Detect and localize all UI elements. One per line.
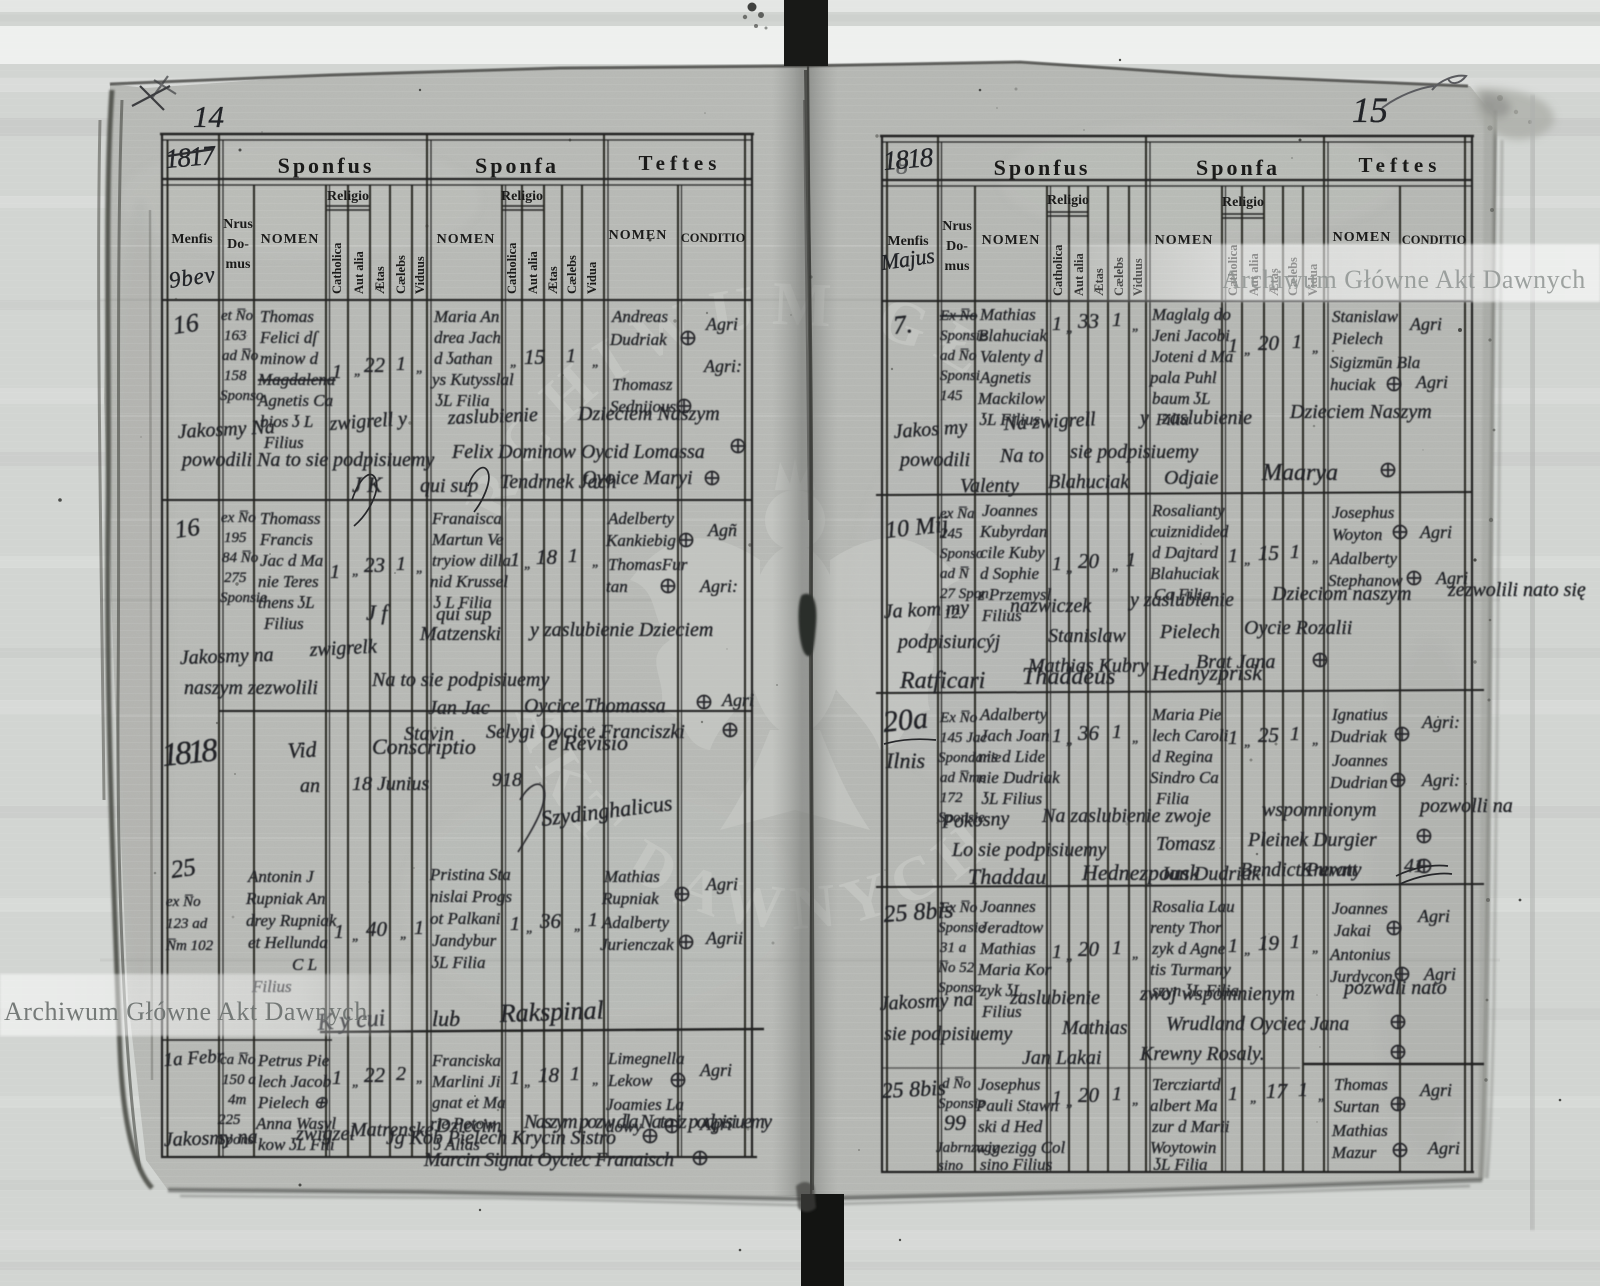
svg-text:podpisiuncýj: podpisiuncýj: [896, 631, 1001, 653]
svg-text:18: 18: [538, 1063, 560, 1087]
svg-text:sie podpisiuemy: sie podpisiuemy: [884, 1023, 1012, 1045]
svg-text:918: 918: [492, 769, 522, 791]
svg-text:ot Palkani: ot Palkani: [430, 909, 501, 928]
svg-text:Agri: Agri: [699, 1060, 732, 1080]
svg-text:„: „: [1250, 1091, 1258, 1106]
svg-text:Krewny Rosaly.: Krewny Rosaly.: [1139, 1043, 1265, 1065]
svg-text:Dudriak: Dudriak: [1329, 727, 1387, 746]
svg-text:20: 20: [1078, 549, 1100, 573]
svg-text:zwoj wspomnienym: zwoj wspomnienym: [1139, 983, 1295, 1005]
svg-text:33: 33: [1077, 309, 1099, 333]
svg-text:„: „: [416, 561, 424, 576]
svg-text:baum ʖL: baum ʖL: [1152, 389, 1210, 408]
svg-text:Adelberty: Adelberty: [607, 509, 675, 528]
svg-text:Thomass: Thomass: [260, 509, 321, 528]
svg-text:Bendict Puratt: Bendict Puratt: [1240, 859, 1358, 881]
svg-text:Wrudland Oyciec Jana: Wrudland Oyciec Jana: [1166, 1013, 1349, 1035]
svg-text:Marlini Ji: Marlini Ji: [431, 1072, 501, 1091]
svg-text:Lo sie podpisiuemy: Lo sie podpisiuemy: [951, 839, 1107, 861]
svg-text:Mathias: Mathias: [1061, 1017, 1128, 1039]
svg-text:Joannes: Joannes: [1332, 751, 1388, 770]
svg-text:zaslubienie: zaslubienie: [446, 404, 538, 429]
svg-text:y zaslubienie Dzieciem: y zaslubienie Dzieciem: [528, 619, 713, 641]
svg-text:NOMEN: NOMEN: [609, 228, 668, 243]
svg-text:Dzieciem Naszym: Dzieciem Naszym: [577, 403, 720, 425]
svg-text:Blahuciak: Blahuciak: [1150, 564, 1219, 583]
svg-text:Mathias: Mathias: [1331, 1121, 1388, 1140]
svg-text:„: „: [592, 1073, 600, 1088]
svg-text:1: 1: [1228, 727, 1238, 749]
svg-text:Agri:: Agri:: [1421, 770, 1460, 790]
svg-text:Archiwum Główne Akt Dawnych: Archiwum Główne Akt Dawnych: [1222, 265, 1586, 294]
svg-text:Felix Dominow Oycid Lomassa: Felix Dominow Oycid Lomassa: [451, 441, 705, 463]
svg-text:zaslubienie: zaslubienie: [1009, 987, 1100, 1009]
svg-text:cuiznidided: cuiznidided: [1150, 522, 1229, 541]
svg-text:1: 1: [414, 917, 424, 939]
svg-text:1: 1: [1228, 545, 1238, 567]
svg-text:1: 1: [1228, 935, 1238, 957]
svg-text:zwigzel: zwigzel: [295, 1123, 355, 1145]
svg-text:Conscriptio: Conscriptio: [372, 734, 476, 759]
svg-text:ex N̅o: ex N̅o: [221, 510, 256, 526]
svg-text:ʖL Filia: ʖL Filia: [431, 953, 485, 972]
svg-text:qui sup: qui sup: [420, 475, 478, 497]
svg-text:huciak: huciak: [1330, 375, 1376, 394]
svg-text:zaslubienie: zaslubienie: [1161, 407, 1252, 429]
svg-text:„: „: [1066, 733, 1074, 748]
svg-text:ex N̅a: ex N̅a: [940, 506, 975, 522]
svg-text:1: 1: [1126, 549, 1136, 571]
svg-text:18: 18: [536, 545, 558, 569]
svg-text:Pleinek Durgier: Pleinek Durgier: [1247, 829, 1377, 851]
svg-text:Nrus: Nrus: [942, 219, 972, 234]
svg-text:pala Puhl: pala Puhl: [1149, 368, 1217, 387]
svg-text:„: „: [1244, 553, 1252, 568]
svg-text:Agri:: Agri:: [1421, 712, 1460, 732]
svg-text:Adalberty: Adalberty: [601, 913, 669, 932]
svg-text:Ex N̅o: Ex N̅o: [939, 308, 978, 324]
svg-text:Sponfus: Sponfus: [994, 155, 1091, 180]
svg-text:40: 40: [366, 917, 388, 941]
svg-text:„: „: [1066, 321, 1074, 336]
svg-text:Teftes: Teftes: [639, 151, 722, 175]
svg-text:thens ʖL: thens ʖL: [258, 593, 315, 612]
svg-text:„: „: [416, 361, 424, 376]
svg-text:Joteni d Ma: Joteni d Ma: [1152, 347, 1233, 366]
svg-text:d Regina: d Regina: [1152, 747, 1213, 766]
svg-text:Religio: Religio: [1222, 195, 1264, 210]
svg-text:1: 1: [1112, 1083, 1122, 1105]
svg-text:„: „: [1312, 733, 1320, 748]
svg-text:Maria An: Maria An: [433, 307, 499, 326]
svg-text:Ex N̅o: Ex N̅o: [939, 710, 978, 726]
svg-text:ThomasFur: ThomasFur: [608, 555, 688, 574]
svg-text:Pielech: Pielech: [1331, 329, 1383, 348]
svg-text:nis d Lide: nis d Lide: [978, 747, 1046, 766]
svg-text:cile Kuby: cile Kuby: [980, 543, 1045, 562]
svg-text:Viduus: Viduus: [413, 256, 427, 294]
svg-text:Agnetis Ca: Agnetis Ca: [257, 391, 333, 410]
svg-text:ad N̅o: ad N̅o: [940, 348, 977, 364]
svg-text:„: „: [1132, 947, 1140, 962]
svg-text:Andreas: Andreas: [611, 307, 668, 326]
svg-text:1: 1: [396, 553, 406, 575]
svg-text:23: 23: [364, 553, 385, 577]
svg-text:Dzieciem Naszym: Dzieciem Naszym: [1289, 401, 1432, 423]
svg-text:Franciska: Franciska: [431, 1051, 501, 1070]
svg-text:Agri:: Agri:: [699, 576, 738, 596]
svg-text:J f: J f: [366, 600, 390, 625]
svg-text:nie Teres: nie Teres: [258, 572, 319, 591]
svg-text:Pristina Sta: Pristina Sta: [429, 865, 511, 884]
svg-text:Na to sie podpisiuemy: Na to sie podpisiuemy: [371, 669, 549, 691]
svg-text:1: 1: [332, 1067, 342, 1089]
svg-text:Blahuciak: Blahuciak: [1048, 471, 1130, 493]
svg-text:„: „: [592, 555, 600, 570]
svg-text:NOMEN: NOMEN: [437, 232, 496, 247]
svg-text:1: 1: [566, 345, 576, 367]
svg-text:Sponfa: Sponfa: [475, 153, 559, 178]
svg-text:Jeradtow: Jeradtow: [980, 918, 1044, 937]
svg-text:y zaslubienie: y zaslubienie: [1128, 589, 1234, 611]
svg-text:Magdalena: Magdalena: [257, 370, 335, 389]
svg-text:Sponfa: Sponfa: [1196, 155, 1280, 180]
svg-text:„: „: [1244, 943, 1252, 958]
svg-text:„: „: [526, 921, 534, 936]
svg-text:Na to: Na to: [999, 445, 1044, 467]
svg-text:1: 1: [1052, 553, 1062, 575]
svg-text:Petrus Pie: Petrus Pie: [257, 1051, 330, 1070]
svg-text:Maglalg do: Maglalg do: [1151, 305, 1231, 324]
svg-text:1: 1: [1052, 313, 1062, 335]
svg-text:1: 1: [1290, 931, 1300, 953]
svg-text:Pokosny: Pokosny: [940, 807, 1010, 833]
svg-text:Mathias: Mathias: [979, 305, 1036, 324]
svg-text:Oycie Rozalii: Oycie Rozalii: [1244, 617, 1352, 639]
svg-text:25: 25: [169, 854, 198, 884]
svg-text:Thomas: Thomas: [260, 307, 314, 326]
svg-text:ʖL Filius: ʖL Filius: [981, 789, 1042, 808]
svg-text:sino Filius: sino Filius: [980, 1155, 1053, 1174]
svg-text:Joannes: Joannes: [980, 897, 1036, 916]
svg-text:zyk d Agne: zyk d Agne: [1151, 939, 1226, 958]
svg-text:1817: 1817: [164, 140, 218, 174]
svg-text:N̅m 102: N̅m 102: [165, 938, 214, 954]
svg-text:Adalberty: Adalberty: [1329, 549, 1397, 568]
svg-text:14: 14: [193, 99, 224, 134]
svg-text:Sponsi: Sponsi: [940, 368, 980, 384]
svg-text:150 a: 150 a: [222, 1072, 256, 1088]
svg-text:15: 15: [1352, 90, 1388, 130]
svg-text:Surtan: Surtan: [1334, 1097, 1379, 1116]
svg-text:Adalberty: Adalberty: [979, 705, 1047, 724]
svg-text:Jurienczak: Jurienczak: [600, 935, 674, 954]
svg-text:zwigrelk: zwigrelk: [308, 635, 378, 661]
svg-text:„: „: [524, 557, 532, 572]
svg-text:Do-: Do-: [946, 239, 968, 254]
svg-text:17: 17: [1266, 1079, 1289, 1103]
svg-text:Joannes: Joannes: [1332, 899, 1388, 918]
svg-text:Franaisca: Franaisca: [431, 509, 502, 528]
svg-text:Antonius: Antonius: [1329, 945, 1391, 964]
svg-text:Agri: Agri: [1409, 314, 1442, 334]
svg-text:ad N̅o: ad N̅o: [222, 348, 259, 364]
svg-text:22: 22: [364, 353, 386, 377]
svg-text:20: 20: [1258, 331, 1280, 355]
svg-text:„: „: [1066, 561, 1074, 576]
svg-text:drey Rupniak: drey Rupniak: [246, 911, 337, 930]
svg-text:Mackilow: Mackilow: [977, 389, 1046, 408]
svg-text:N̅o 52: N̅o 52: [937, 960, 975, 976]
svg-text:„: „: [400, 927, 408, 942]
svg-text:1: 1: [330, 561, 340, 583]
svg-text:„: „: [510, 355, 518, 370]
svg-text:Valenty: Valenty: [960, 475, 1019, 497]
svg-text:albert Ma: albert Ma: [1150, 1096, 1218, 1115]
svg-text:Cælebs: Cælebs: [565, 255, 579, 294]
svg-text:mus: mus: [226, 257, 251, 272]
svg-text:„: „: [354, 364, 362, 379]
svg-text:Thomasz: Thomasz: [612, 375, 673, 394]
svg-text:wspomnionym: wspomnionym: [1262, 799, 1376, 821]
svg-text:sino: sino: [938, 1158, 964, 1174]
svg-text:lech Jacob: lech Jacob: [258, 1072, 331, 1091]
svg-text:Agri: Agri: [705, 874, 738, 894]
svg-text:nie Dudriak: nie Dudriak: [978, 768, 1060, 787]
svg-text:Agñ: Agñ: [707, 520, 737, 540]
svg-text:zezwolili nato się: zezwolili nato się: [1447, 579, 1586, 601]
svg-text:NOMEN: NOMEN: [1333, 230, 1392, 245]
svg-text:Agri: Agri: [1415, 372, 1448, 392]
svg-text:Woyton: Woyton: [1332, 525, 1382, 544]
svg-text:Jan Jac: Jan Jac: [428, 697, 490, 719]
svg-text:Hednezpousk: Hednezpousk: [1081, 860, 1201, 885]
svg-text:„: „: [1132, 1093, 1140, 1108]
svg-text:Catholica: Catholica: [505, 242, 519, 294]
svg-text:„: „: [1244, 343, 1252, 358]
svg-text:lech Caroli: lech Caroli: [1152, 726, 1229, 745]
svg-text:1: 1: [510, 913, 520, 935]
svg-text:gnat et Ma: gnat et Ma: [432, 1093, 506, 1112]
svg-text:1: 1: [334, 921, 344, 943]
svg-text:Jg Kob Pielech Krycin Sistro: Jg Kob Pielech Krycin Sistro: [386, 1127, 616, 1149]
svg-text:1: 1: [1112, 937, 1122, 959]
svg-text:1: 1: [1228, 1083, 1238, 1105]
svg-text:1: 1: [332, 361, 342, 383]
svg-text:zur d Marii: zur d Marii: [1151, 1117, 1230, 1136]
svg-text:22: 22: [364, 1063, 386, 1087]
svg-text:1: 1: [510, 1067, 520, 1089]
svg-text:mus: mus: [945, 259, 970, 274]
svg-text:ex N̅o: ex N̅o: [166, 894, 201, 910]
svg-text:Josephus: Josephus: [978, 1075, 1041, 1094]
svg-text:Jan Lakai: Jan Lakai: [1022, 1047, 1101, 1069]
svg-text:99: 99: [944, 1110, 966, 1135]
svg-text:20: 20: [1078, 1083, 1100, 1107]
svg-text:Lekow: Lekow: [607, 1071, 653, 1090]
svg-text:1: 1: [1290, 723, 1300, 745]
svg-text:d ʖathan: d ʖathan: [434, 349, 492, 368]
svg-text:d Sophie: d Sophie: [980, 564, 1039, 583]
svg-text:e Revisio: e Revisio: [548, 730, 628, 755]
svg-text:Catholica: Catholica: [330, 242, 344, 294]
svg-text:C L: C L: [292, 955, 317, 974]
svg-text:Mathias: Mathias: [603, 867, 660, 886]
svg-text:Vidua: Vidua: [585, 261, 599, 294]
svg-text:„: „: [352, 929, 360, 944]
svg-text:Kankiebig: Kankiebig: [605, 531, 676, 550]
svg-text:ski d Hed: ski d Hed: [978, 1117, 1043, 1136]
svg-text:1: 1: [568, 545, 578, 567]
svg-text:1: 1: [1112, 309, 1122, 331]
svg-text:ʖL Filia: ʖL Filia: [1153, 1155, 1207, 1174]
svg-text:Pielech: Pielech: [1159, 621, 1220, 643]
svg-text:Oycice Thomassa: Oycice Thomassa: [524, 695, 666, 717]
svg-text:„: „: [1132, 319, 1140, 334]
svg-text:Thaddeus: Thaddeus: [1022, 664, 1115, 690]
svg-text:2: 2: [396, 1063, 406, 1085]
svg-text:Stanislaw: Stanislaw: [1332, 307, 1399, 326]
svg-text:Aut alia: Aut alia: [352, 251, 366, 294]
svg-text:Oyoice Maryi: Oyoice Maryi: [582, 467, 693, 489]
svg-text:172: 172: [940, 790, 963, 806]
svg-text:renty Thor: renty Thor: [1150, 918, 1222, 937]
svg-text:Rakspinal: Rakspinal: [498, 995, 604, 1028]
svg-text:NOMEN: NOMEN: [261, 232, 320, 247]
svg-text:„: „: [1312, 341, 1320, 356]
svg-text:Archiwum Główne Akt Dawnych: Archiwum Główne Akt Dawnych: [4, 997, 368, 1026]
svg-text:powodili Na to sie podpisiuemy: powodili Na to sie podpisiuemy: [180, 449, 434, 471]
svg-text:„: „: [524, 1075, 532, 1090]
svg-text:1: 1: [396, 353, 406, 375]
svg-text:Rosalianty: Rosalianty: [1151, 501, 1225, 520]
svg-text:1818: 1818: [160, 732, 220, 774]
svg-text:Ætas: Ætas: [546, 266, 560, 294]
svg-text:Stanislaw: Stanislaw: [1048, 625, 1126, 647]
svg-text:Thaddau: Thaddau: [968, 864, 1046, 889]
svg-text:Pielech ⊕: Pielech ⊕: [257, 1093, 328, 1112]
svg-text:Agnetis: Agnetis: [979, 368, 1031, 387]
svg-text:20a: 20a: [881, 701, 929, 739]
svg-text:Martun Ve: Martun Ve: [431, 530, 504, 549]
svg-text:Rupniak An: Rupniak An: [245, 889, 325, 908]
svg-text:„: „: [592, 355, 600, 370]
svg-text:Ætas: Ætas: [373, 266, 387, 294]
svg-text:et N̅o: et N̅o: [221, 308, 254, 324]
svg-text:et Hellunda: et Hellunda: [248, 933, 328, 952]
svg-text:„: „: [1312, 941, 1320, 956]
svg-text:25 8bis: 25 8bis: [881, 1075, 946, 1103]
svg-text:an: an: [300, 775, 320, 797]
svg-text:powodili: powodili: [898, 449, 970, 471]
svg-text:tan: tan: [606, 577, 628, 596]
svg-text:Sponfus: Sponfus: [278, 153, 375, 178]
svg-text:Jakosmy na: Jakosmy na: [179, 644, 274, 669]
svg-text:minow d: minow d: [260, 349, 319, 368]
svg-text:Aut alia: Aut alia: [526, 251, 540, 294]
svg-text:Tercziartd: Tercziartd: [1152, 1075, 1221, 1094]
svg-text:Cælebs: Cælebs: [394, 255, 408, 294]
svg-text:8: 8: [896, 154, 908, 180]
svg-text:Vid: Vid: [287, 736, 318, 763]
svg-text:„: „: [1318, 1089, 1326, 1104]
svg-text:ca N̅o: ca N̅o: [220, 1052, 256, 1068]
svg-text:Jakai: Jakai: [1334, 921, 1371, 940]
svg-text:pozwolli na: pozwolli na: [1418, 795, 1513, 817]
svg-text:Menfis: Menfis: [171, 232, 213, 247]
svg-text:Rosalia Lau: Rosalia Lau: [1151, 897, 1235, 916]
svg-text:Tomasz: Tomasz: [1156, 833, 1216, 855]
svg-text:NOMEN: NOMEN: [982, 233, 1041, 248]
svg-text:Agri: Agri: [1417, 906, 1450, 926]
svg-text:d N̅o: d N̅o: [942, 1076, 971, 1092]
svg-text:Dzieciom naszym: Dzieciom naszym: [1271, 583, 1411, 605]
svg-text:Pauli Stawn: Pauli Stawn: [975, 1096, 1059, 1115]
svg-text:ys Kutysslal: ys Kutysslal: [430, 370, 514, 389]
svg-text:lub: lub: [432, 1006, 460, 1031]
svg-text:Ratficari: Ratficari: [899, 668, 985, 694]
svg-text:Agri: Agri: [705, 314, 738, 334]
svg-text:Jach Joan: Jach Joan: [980, 726, 1049, 745]
svg-text:drea Jach: drea Jach: [434, 328, 501, 347]
svg-text:y: y: [1138, 407, 1149, 429]
svg-text:16: 16: [171, 308, 201, 340]
svg-text:1: 1: [1292, 331, 1302, 353]
svg-text:1: 1: [510, 549, 520, 571]
svg-text:„: „: [416, 1071, 424, 1086]
svg-text:d Dajtard: d Dajtard: [1152, 543, 1218, 562]
svg-text:Religio: Religio: [501, 189, 543, 204]
svg-text:Nrus: Nrus: [223, 217, 253, 232]
svg-text:Jakosmy na: Jakosmy na: [163, 1126, 258, 1151]
svg-text:pozwdli nato: pozwdli nato: [1342, 977, 1447, 999]
svg-text:Matzenski: Matzenski: [419, 623, 501, 645]
svg-text:„: „: [352, 564, 360, 579]
svg-text:Ja kom my: Ja kom my: [883, 597, 970, 623]
svg-text:Rupniak: Rupniak: [601, 889, 659, 908]
svg-text:31 a: 31 a: [939, 940, 966, 956]
svg-text:1: 1: [1052, 941, 1062, 963]
svg-text:Agrii: Agrii: [705, 928, 743, 948]
svg-text:Ignatius: Ignatius: [1331, 705, 1388, 724]
svg-text:nid Krussel: nid Krussel: [430, 572, 508, 591]
svg-text:„: „: [1112, 559, 1120, 574]
svg-text:„: „: [1312, 551, 1320, 566]
svg-text:Sindro Ca: Sindro Ca: [1150, 768, 1219, 787]
svg-text:1: 1: [1052, 1087, 1062, 1109]
svg-text:Do-: Do-: [227, 237, 249, 252]
svg-text:1: 1: [1228, 335, 1238, 357]
svg-text:Religio: Religio: [1047, 193, 1089, 208]
svg-text:CONDITIO: CONDITIO: [681, 231, 746, 245]
svg-text:36: 36: [539, 909, 562, 933]
svg-text:245: 245: [940, 526, 963, 542]
svg-text:Sigizmūn Bla: Sigizmūn Bla: [1330, 353, 1420, 372]
svg-text:„: „: [1132, 731, 1140, 746]
svg-text:Mazur: Mazur: [1331, 1143, 1377, 1162]
svg-text:Felici dſ: Felici dſ: [259, 328, 319, 347]
svg-text:Maria Pie: Maria Pie: [1151, 705, 1222, 724]
svg-text:Jandybur: Jandybur: [432, 931, 497, 950]
svg-text:1: 1: [570, 1063, 580, 1085]
svg-text:Maria Kor: Maria Kor: [977, 960, 1052, 979]
svg-text:145: 145: [940, 388, 963, 404]
svg-text:nislai Progs: nislai Progs: [430, 887, 512, 906]
svg-text:Marcin Signat Oyciec Franaisch: Marcin Signat Oyciec Franaisch: [423, 1149, 674, 1171]
svg-text:Dudrian: Dudrian: [1329, 773, 1388, 792]
svg-text:195: 195: [224, 530, 247, 546]
svg-text:tryiow dilla: tryiow dilla: [432, 551, 511, 570]
